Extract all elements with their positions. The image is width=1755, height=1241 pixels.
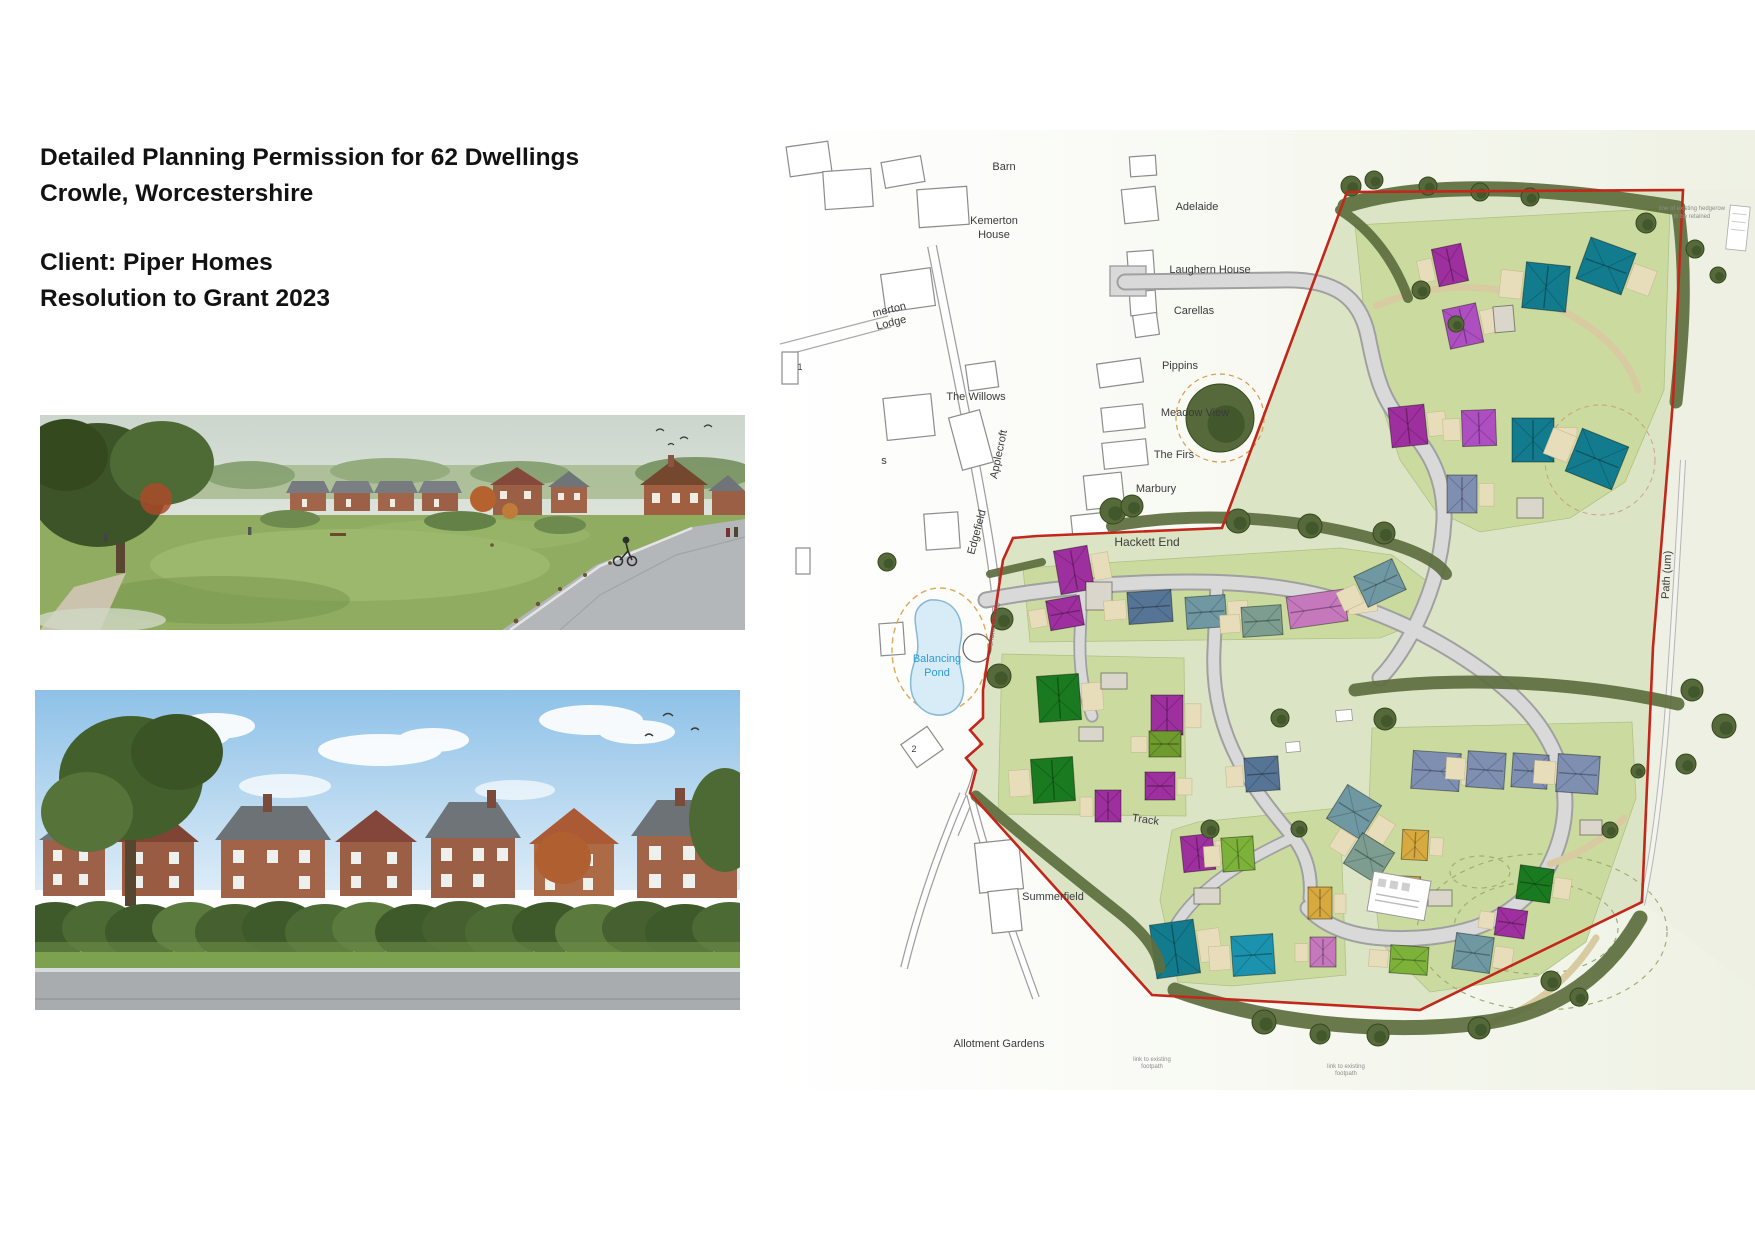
map-label: 2 bbox=[911, 744, 916, 754]
tree bbox=[1468, 1017, 1490, 1039]
map-label: Pippins bbox=[1162, 360, 1199, 372]
tree bbox=[1681, 679, 1703, 701]
photo-open-space-render bbox=[40, 415, 745, 630]
map-label: to be retained bbox=[1674, 214, 1711, 220]
map-label: Kemerton bbox=[970, 215, 1018, 227]
site-plan: BarnKemertonHousemertonLodgeAdelaideLaug… bbox=[780, 130, 1755, 1090]
map-label: Meadow View bbox=[1161, 407, 1229, 419]
corner-note-box bbox=[1726, 205, 1750, 251]
tree bbox=[1201, 820, 1219, 838]
tree bbox=[1570, 988, 1588, 1006]
garage-block bbox=[1517, 498, 1543, 518]
tree bbox=[1271, 709, 1289, 727]
garage-block bbox=[1493, 305, 1515, 333]
neighbor-building bbox=[965, 361, 998, 391]
map-label: link to existing bbox=[1133, 1057, 1171, 1063]
garage-block bbox=[1428, 890, 1452, 906]
tree bbox=[1374, 708, 1396, 730]
tree bbox=[1367, 1024, 1389, 1046]
garage-block bbox=[1580, 820, 1602, 835]
tree bbox=[1121, 495, 1143, 517]
title-block: Detailed Planning Permission for 62 Dwel… bbox=[40, 140, 720, 317]
map-label: 1 bbox=[797, 362, 802, 372]
map-label: Barn bbox=[992, 161, 1015, 173]
client-line: Client: Piper Homes bbox=[40, 245, 720, 281]
tree bbox=[1373, 522, 1395, 544]
garage-block bbox=[1079, 727, 1103, 741]
map-label: Balancing bbox=[913, 653, 961, 665]
page-title-line1: Detailed Planning Permission for 62 Dwel… bbox=[40, 140, 720, 176]
tree bbox=[1412, 281, 1430, 299]
tree bbox=[1712, 714, 1736, 738]
garage-block bbox=[1101, 673, 1127, 689]
tree bbox=[1310, 1024, 1330, 1044]
neighbor-building bbox=[1121, 186, 1158, 223]
map-label: Carellas bbox=[1174, 305, 1215, 317]
garage-block bbox=[1194, 888, 1220, 904]
tree bbox=[878, 553, 896, 571]
photo2-hedge bbox=[35, 901, 740, 960]
page: Detailed Planning Permission for 62 Dwel… bbox=[0, 0, 1755, 1241]
map-label: Path (um) bbox=[1660, 550, 1675, 599]
neighbor-building bbox=[1133, 312, 1160, 337]
map-label: footpath bbox=[1141, 1064, 1163, 1070]
tree bbox=[1448, 316, 1464, 332]
photo2-road bbox=[35, 968, 740, 1010]
tree bbox=[1226, 509, 1250, 533]
tree bbox=[1631, 764, 1645, 778]
status-line: Resolution to Grant 2023 bbox=[40, 281, 720, 317]
map-label: Adelaide bbox=[1176, 201, 1219, 213]
map-label: Pond bbox=[924, 667, 950, 679]
photo-street-scene-render bbox=[35, 690, 740, 1010]
map-label: Allotment Gardens bbox=[953, 1038, 1045, 1050]
map-label: Marbury bbox=[1136, 483, 1177, 495]
map-label: link to existing bbox=[1327, 1064, 1365, 1070]
map-label: Laughern House bbox=[1169, 264, 1250, 276]
tree bbox=[1602, 822, 1618, 838]
tree bbox=[1541, 971, 1561, 991]
map-label: line of existing hedgerow bbox=[1659, 206, 1726, 212]
map-label: The Willows bbox=[946, 391, 1006, 403]
tree bbox=[1298, 514, 1322, 538]
tree bbox=[1636, 213, 1656, 233]
neighbor-building bbox=[823, 168, 874, 209]
tree bbox=[1291, 821, 1307, 837]
tree bbox=[1365, 171, 1383, 189]
map-label: Hackett End bbox=[1114, 535, 1179, 549]
map-label: Summerfield bbox=[1022, 891, 1084, 903]
map-label: footpath bbox=[1335, 1071, 1357, 1077]
tree bbox=[1676, 754, 1696, 774]
tree bbox=[1710, 267, 1726, 283]
neighbor-building bbox=[782, 352, 798, 384]
neighbor-building bbox=[1129, 155, 1156, 177]
neighbor-building bbox=[924, 512, 960, 550]
substation-box bbox=[1336, 709, 1353, 721]
neighbor-building bbox=[975, 839, 1024, 893]
neighbor-building bbox=[988, 889, 1022, 934]
neighbor-building bbox=[883, 394, 935, 441]
utility-box bbox=[1286, 741, 1301, 752]
map-label: s bbox=[881, 455, 887, 467]
tree bbox=[987, 664, 1011, 688]
tree bbox=[1686, 240, 1704, 258]
tree bbox=[1252, 1010, 1276, 1034]
map-label: The Firs bbox=[1154, 449, 1195, 461]
neighbor-building bbox=[1102, 439, 1148, 469]
map-label: House bbox=[978, 229, 1010, 241]
neighbor-building bbox=[796, 548, 810, 574]
neighbor-building bbox=[917, 186, 970, 227]
page-title-line2: Crowle, Worcestershire bbox=[40, 176, 720, 212]
neighbor-building bbox=[1101, 404, 1145, 432]
